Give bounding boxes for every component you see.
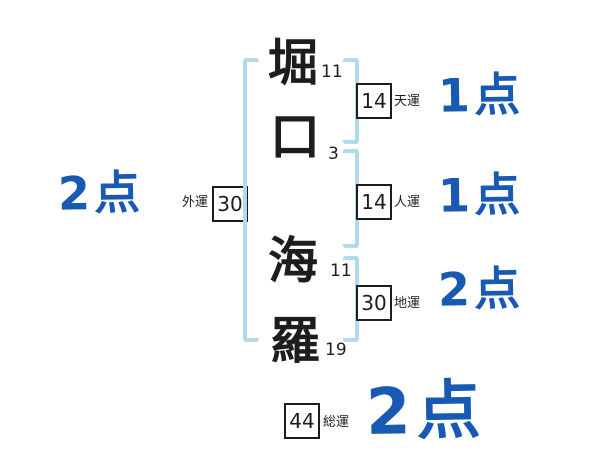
name-char-1-strokes: 11 — [321, 64, 343, 81]
name-char-2-strokes: 3 — [328, 146, 339, 163]
chiun-score: 2点 — [438, 265, 525, 312]
name-char-4-strokes: 19 — [325, 342, 347, 359]
name-fortune-diagram: 2点 外運 30 堀 11 口 3 海 11 羅 19 14 天運 1点 14 … — [0, 0, 600, 470]
name-char-4: 羅 — [270, 316, 320, 366]
full-name-bracket — [243, 58, 259, 342]
gaiun-score: 2点 — [58, 169, 145, 216]
tenun-label: 天運 — [394, 95, 420, 108]
souun-label: 総運 — [323, 416, 349, 429]
chiun-value-box: 30 — [356, 285, 392, 321]
tenun-score: 1点 — [438, 71, 525, 118]
jinun-score: 1点 — [438, 171, 525, 218]
souun-score: 2点 — [365, 379, 487, 445]
chiun-label: 地運 — [394, 297, 420, 310]
name-char-1: 堀 — [268, 38, 318, 88]
souun-value-box: 44 — [284, 403, 320, 439]
jinun-label: 人運 — [394, 196, 420, 209]
jinun-value-box: 14 — [356, 184, 392, 220]
name-char-2: 口 — [270, 112, 320, 162]
name-char-3: 海 — [268, 236, 318, 286]
tenun-value-box: 14 — [356, 83, 392, 119]
gaiun-label: 外運 — [182, 196, 208, 209]
name-char-3-strokes: 11 — [330, 263, 352, 280]
